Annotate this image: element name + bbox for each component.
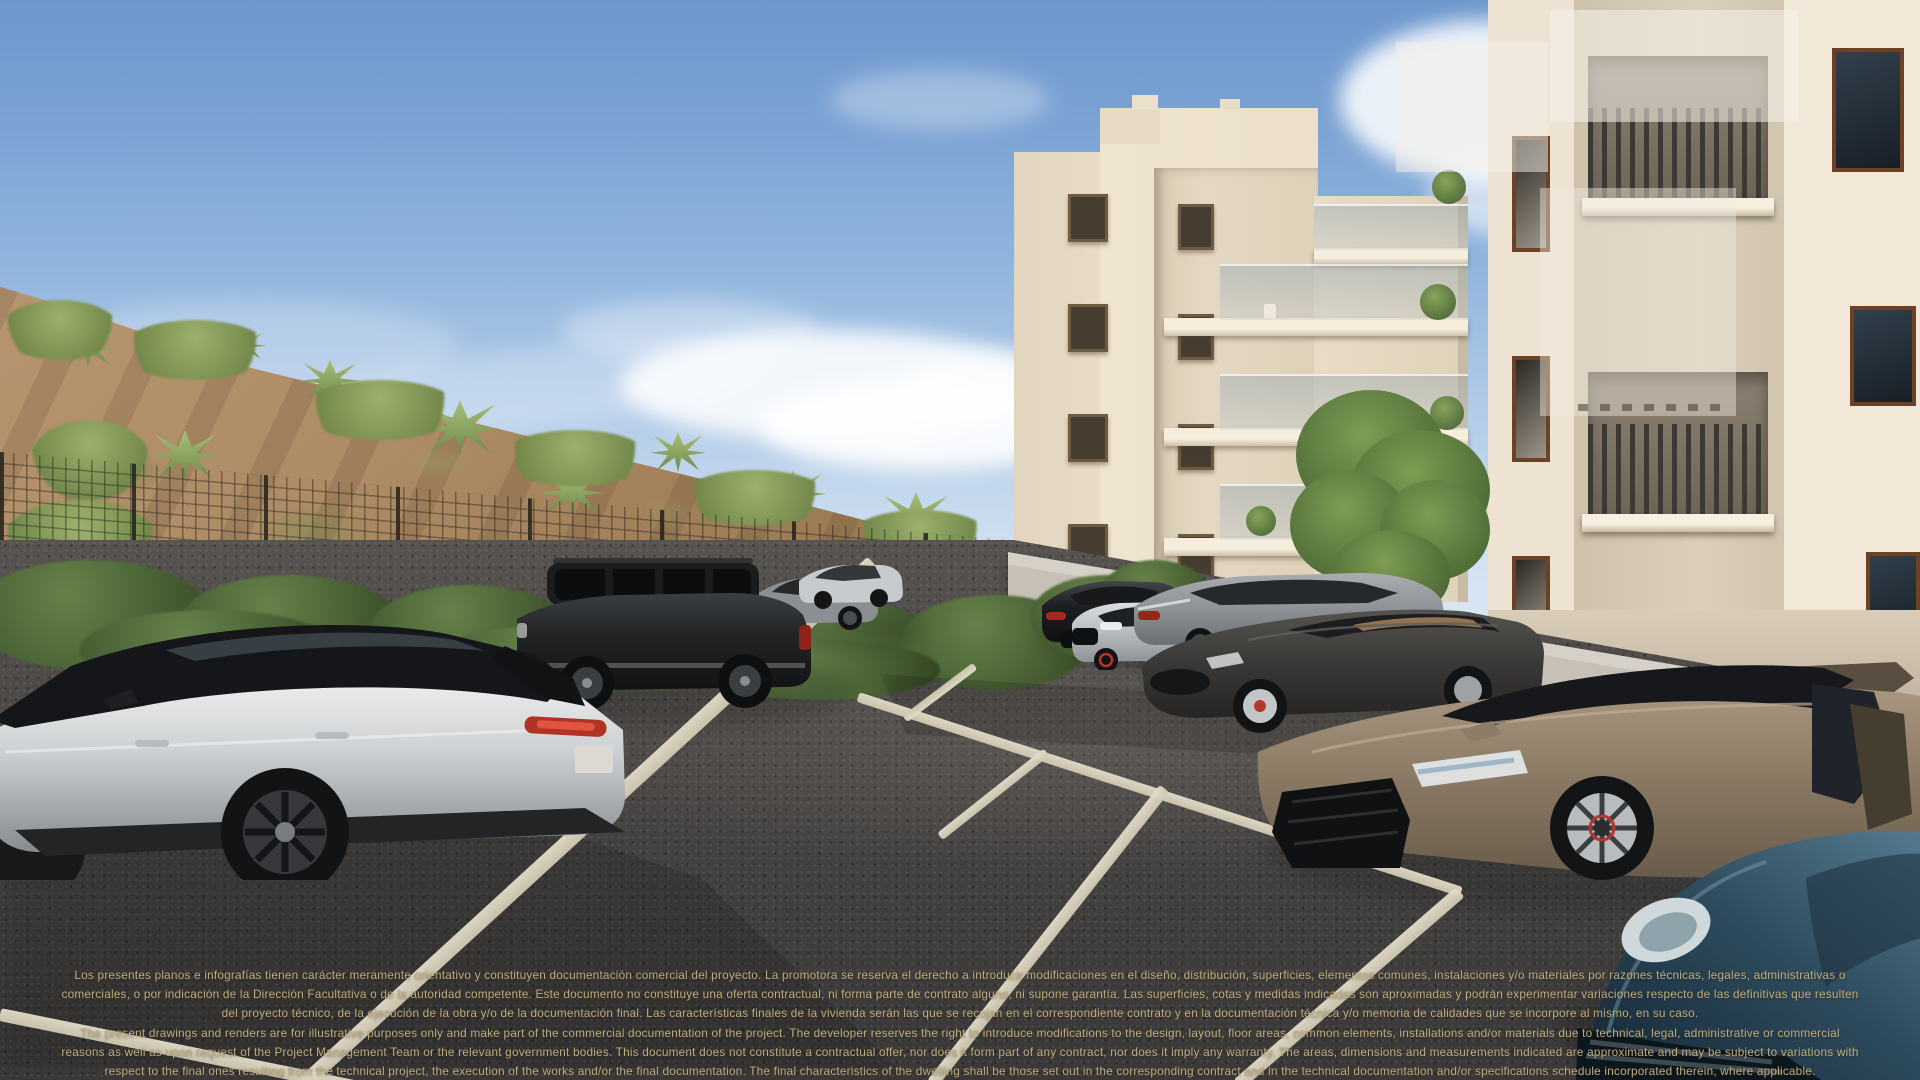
glass-balustrade <box>1314 204 1468 250</box>
logo-redaction-patch <box>1550 10 1798 122</box>
window <box>1850 306 1916 406</box>
logo-redaction-patch <box>1540 188 1736 416</box>
logo-redaction-patch <box>1396 42 1548 172</box>
cloud-blob <box>560 300 820 360</box>
window <box>1068 194 1108 242</box>
roof-stub <box>1132 95 1158 109</box>
window <box>1832 48 1904 172</box>
silver-suv-black-roof <box>0 580 625 880</box>
window <box>1178 204 1214 250</box>
window <box>1068 304 1108 352</box>
balcony-plant <box>1420 284 1456 320</box>
window <box>1068 414 1108 462</box>
grass-tuft <box>120 320 270 380</box>
balcony-railing <box>1588 424 1768 516</box>
balcony-plant <box>1246 506 1276 536</box>
balcony-slab <box>1582 514 1774 532</box>
balcony-plant <box>1432 170 1466 204</box>
logo-text-remnant <box>1578 404 1728 411</box>
grass-tuft <box>300 380 460 440</box>
grass-tuft <box>0 300 120 360</box>
building-parapet-step <box>1100 108 1160 144</box>
roof-stub <box>1220 99 1240 109</box>
render-scene: Los presentes planos e infografías tiene… <box>0 0 1920 1080</box>
disclaimer-spanish: Los presentes planos e infografías tiene… <box>60 966 1860 1023</box>
balcony-slab <box>1314 248 1468 264</box>
vase <box>1264 304 1276 318</box>
balcony-slab <box>1164 318 1468 336</box>
disclaimer-english: The present drawings and renders are for… <box>60 1024 1860 1080</box>
grass-tuft <box>500 430 650 486</box>
